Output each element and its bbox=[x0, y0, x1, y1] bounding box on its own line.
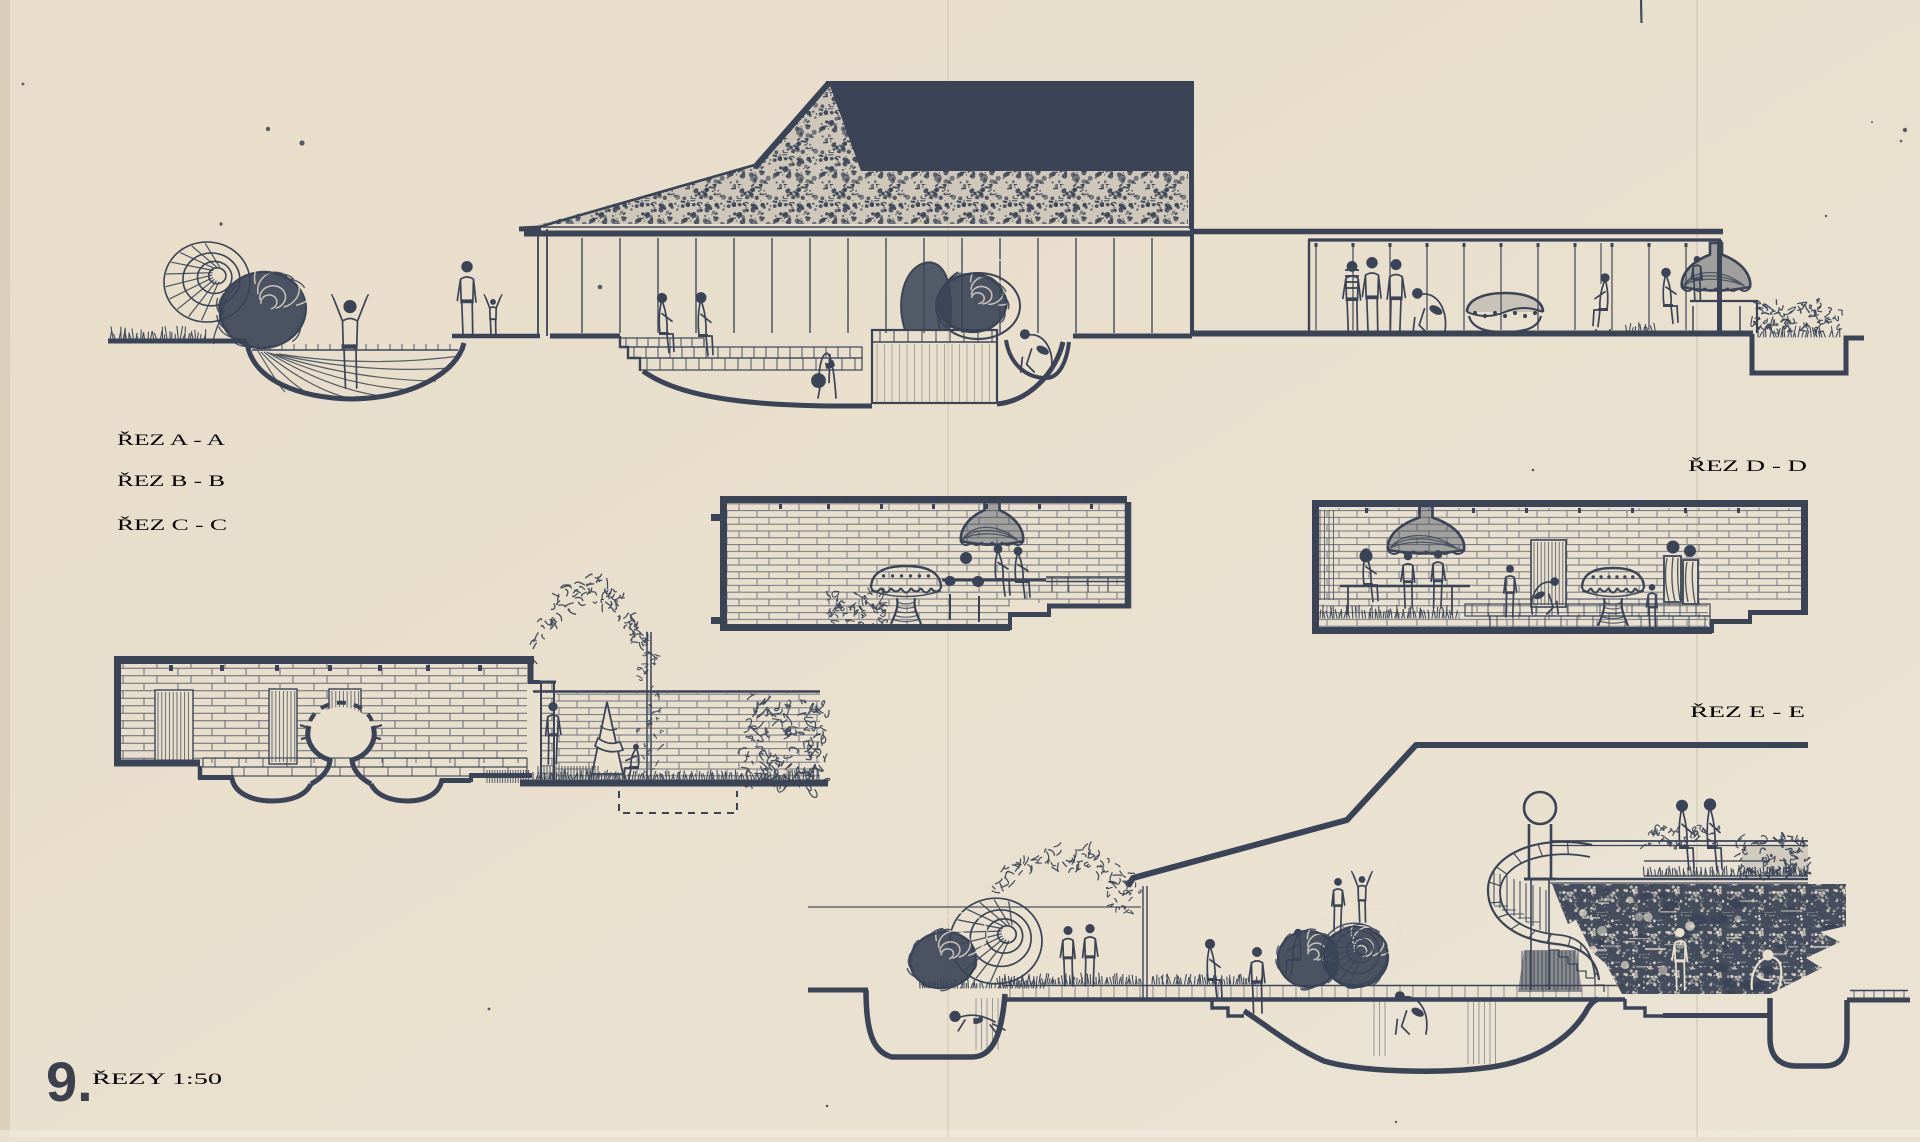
svg-text:ŘEZ B - B: ŘEZ B - B bbox=[117, 471, 225, 490]
svg-text:ŘEZ E - E: ŘEZ E - E bbox=[1690, 702, 1805, 721]
svg-text:9.: 9. bbox=[46, 1050, 93, 1113]
svg-text:ŘEZ D - D: ŘEZ D - D bbox=[1688, 456, 1807, 475]
svg-text:ŘEZ C - C: ŘEZ C - C bbox=[117, 515, 227, 534]
svg-text:ŘEZY 1:50: ŘEZY 1:50 bbox=[92, 1069, 222, 1088]
svg-text:ŘEZ A - A: ŘEZ A - A bbox=[117, 430, 226, 449]
